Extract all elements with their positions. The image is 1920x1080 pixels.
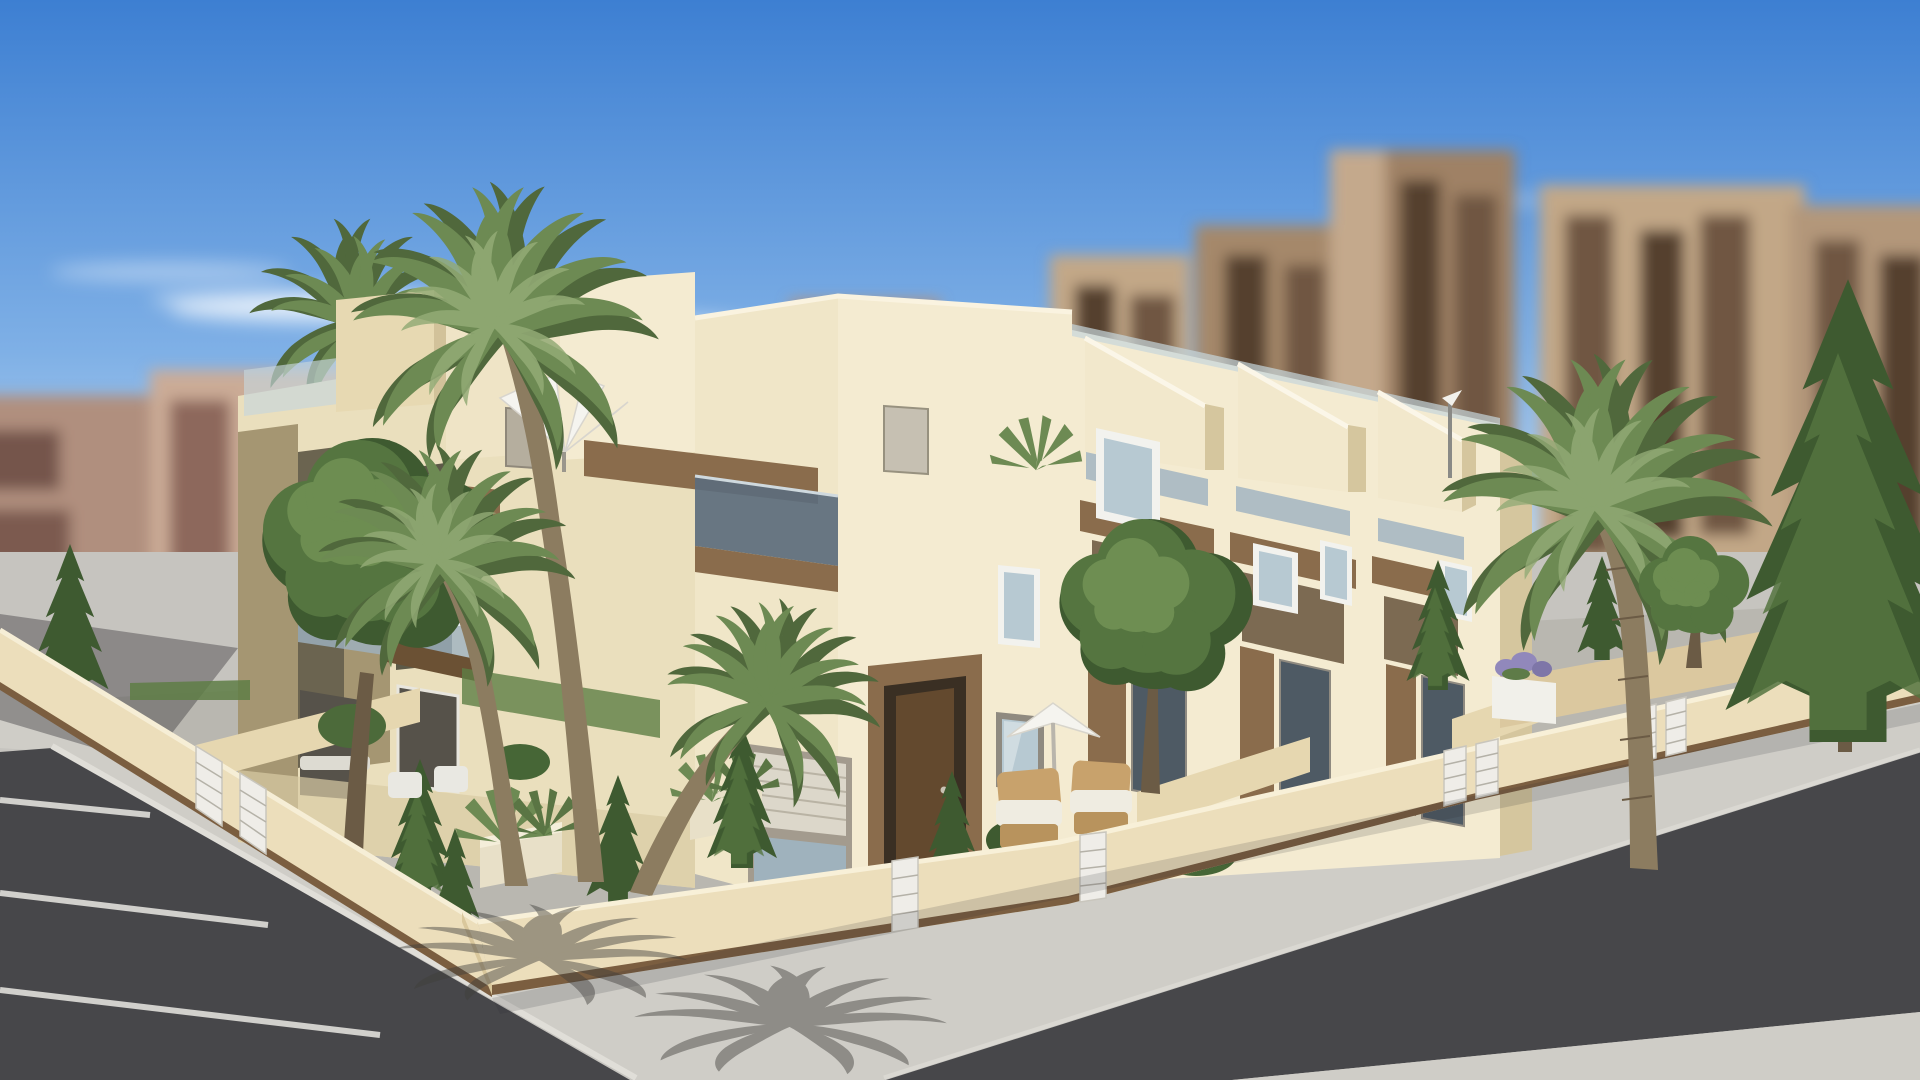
architectural-render [0, 0, 1920, 1080]
shrub [318, 704, 386, 748]
flower-leaves [1502, 668, 1530, 680]
cloud [50, 262, 290, 282]
chair [434, 766, 468, 792]
chair-cushion [996, 800, 1062, 826]
planter-box [1492, 676, 1556, 724]
planter-flowers [1492, 652, 1556, 724]
bg-windows [0, 430, 60, 490]
chair-cushion [1070, 790, 1132, 814]
flowers [1532, 661, 1552, 677]
bg-windows [170, 400, 230, 570]
grass-strip [130, 680, 250, 700]
roof-box-side [1462, 438, 1476, 512]
window-glass [1325, 546, 1347, 600]
window-glass [1004, 572, 1034, 641]
render-canvas [0, 0, 1920, 1080]
window-glass [1259, 551, 1292, 607]
chair [388, 772, 422, 798]
roof-access-door [884, 406, 928, 474]
wicker-chair [1070, 760, 1132, 834]
roof-box-side [1348, 425, 1366, 492]
wicker-chair [996, 767, 1062, 848]
roof-box-side [1205, 404, 1224, 470]
window-glass [1104, 438, 1152, 522]
